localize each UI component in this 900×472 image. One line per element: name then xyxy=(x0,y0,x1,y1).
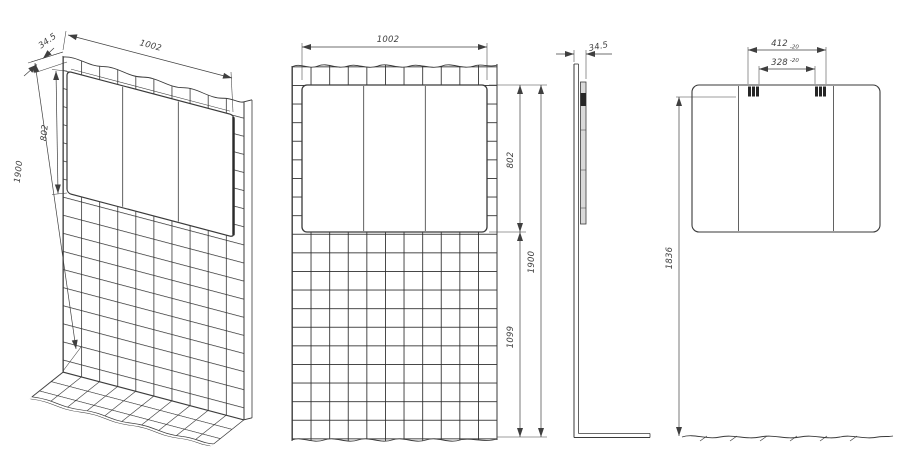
dim-label-iso-802: 802 xyxy=(39,124,50,142)
dim-label-back-412: 412-20 xyxy=(771,39,799,51)
extension-lines-front xyxy=(489,85,547,437)
dim-label-side-34-5: 34.5 xyxy=(588,40,609,54)
dim-label-front-1900: 1900 xyxy=(527,251,537,273)
dim-label-iso-1002: 1002 xyxy=(138,38,162,53)
mirror-panel-front xyxy=(302,85,487,232)
technical-drawing-page: 1900 34.5 1002 802 xyxy=(0,0,900,472)
mirror-panel-back xyxy=(692,85,880,232)
mounting-bracket-side xyxy=(581,93,587,106)
dim-label-iso-1900: 1900 xyxy=(13,160,26,183)
dim-label-front-1099: 1099 xyxy=(506,326,516,348)
mounting-bracket-right xyxy=(815,87,826,97)
front-view: 1002 802 1099 1900 xyxy=(292,35,547,454)
isometric-view: 1900 34.5 1002 802 xyxy=(13,31,252,453)
mounting-bracket-left xyxy=(748,87,759,97)
side-view: 34.5 xyxy=(556,40,650,437)
dim-label-front-802: 802 xyxy=(506,152,516,169)
floor-line-back xyxy=(682,436,893,441)
technical-drawing: 1900 34.5 1002 802 xyxy=(0,0,900,472)
dimension-iso-depth xyxy=(24,48,67,76)
back-view: 412-20 328-20 1836 xyxy=(665,39,893,441)
dimension-side-depth xyxy=(556,50,612,79)
dim-label-back-328: 328-20 xyxy=(771,58,799,68)
dimension-back-bracket-inner xyxy=(759,66,815,84)
tiled-wall-iso xyxy=(63,36,252,422)
dim-label-front-1002: 1002 xyxy=(377,35,399,45)
dim-label-back-1836: 1836 xyxy=(665,246,675,269)
dim-label-iso-34-5: 34.5 xyxy=(37,32,59,52)
